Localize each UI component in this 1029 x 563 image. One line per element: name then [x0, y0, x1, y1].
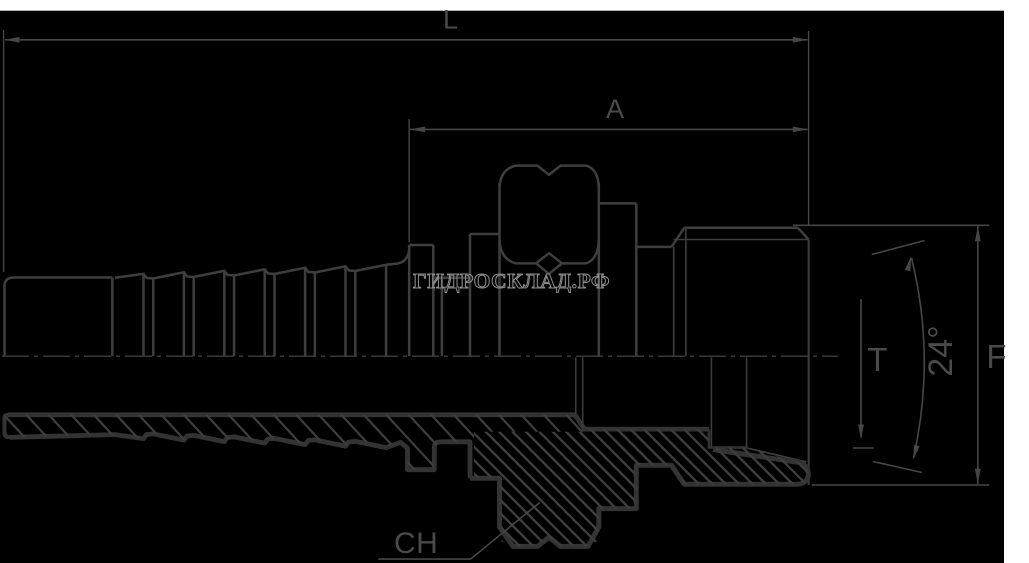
svg-text:L: L: [443, 5, 458, 35]
svg-text:F: F: [986, 338, 1006, 375]
svg-text:ГИДРОСКЛАД.РФ: ГИДРОСКЛАД.РФ: [413, 269, 610, 293]
svg-text:24°: 24°: [922, 325, 960, 376]
svg-text:A: A: [606, 94, 624, 124]
svg-text:CH: CH: [394, 527, 438, 560]
svg-text:T: T: [867, 341, 887, 378]
